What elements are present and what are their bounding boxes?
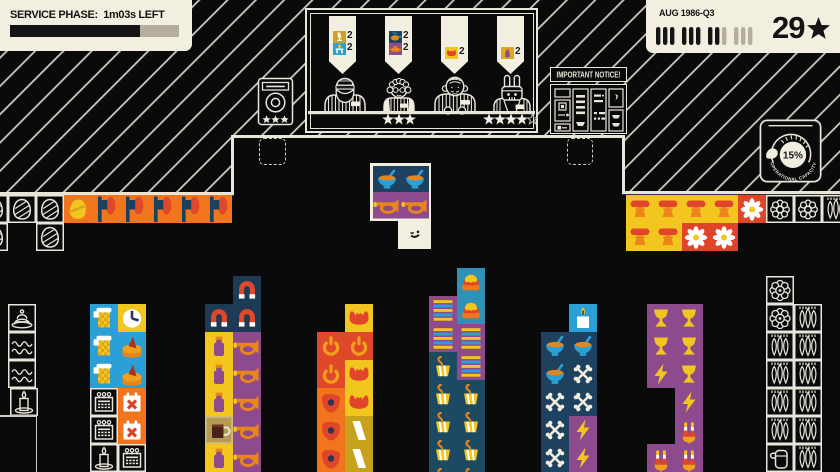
svg-text:IMPORTANT NOTICE!: IMPORTANT NOTICE!: [557, 71, 621, 80]
svg-text:15%: 15%: [783, 151, 803, 162]
